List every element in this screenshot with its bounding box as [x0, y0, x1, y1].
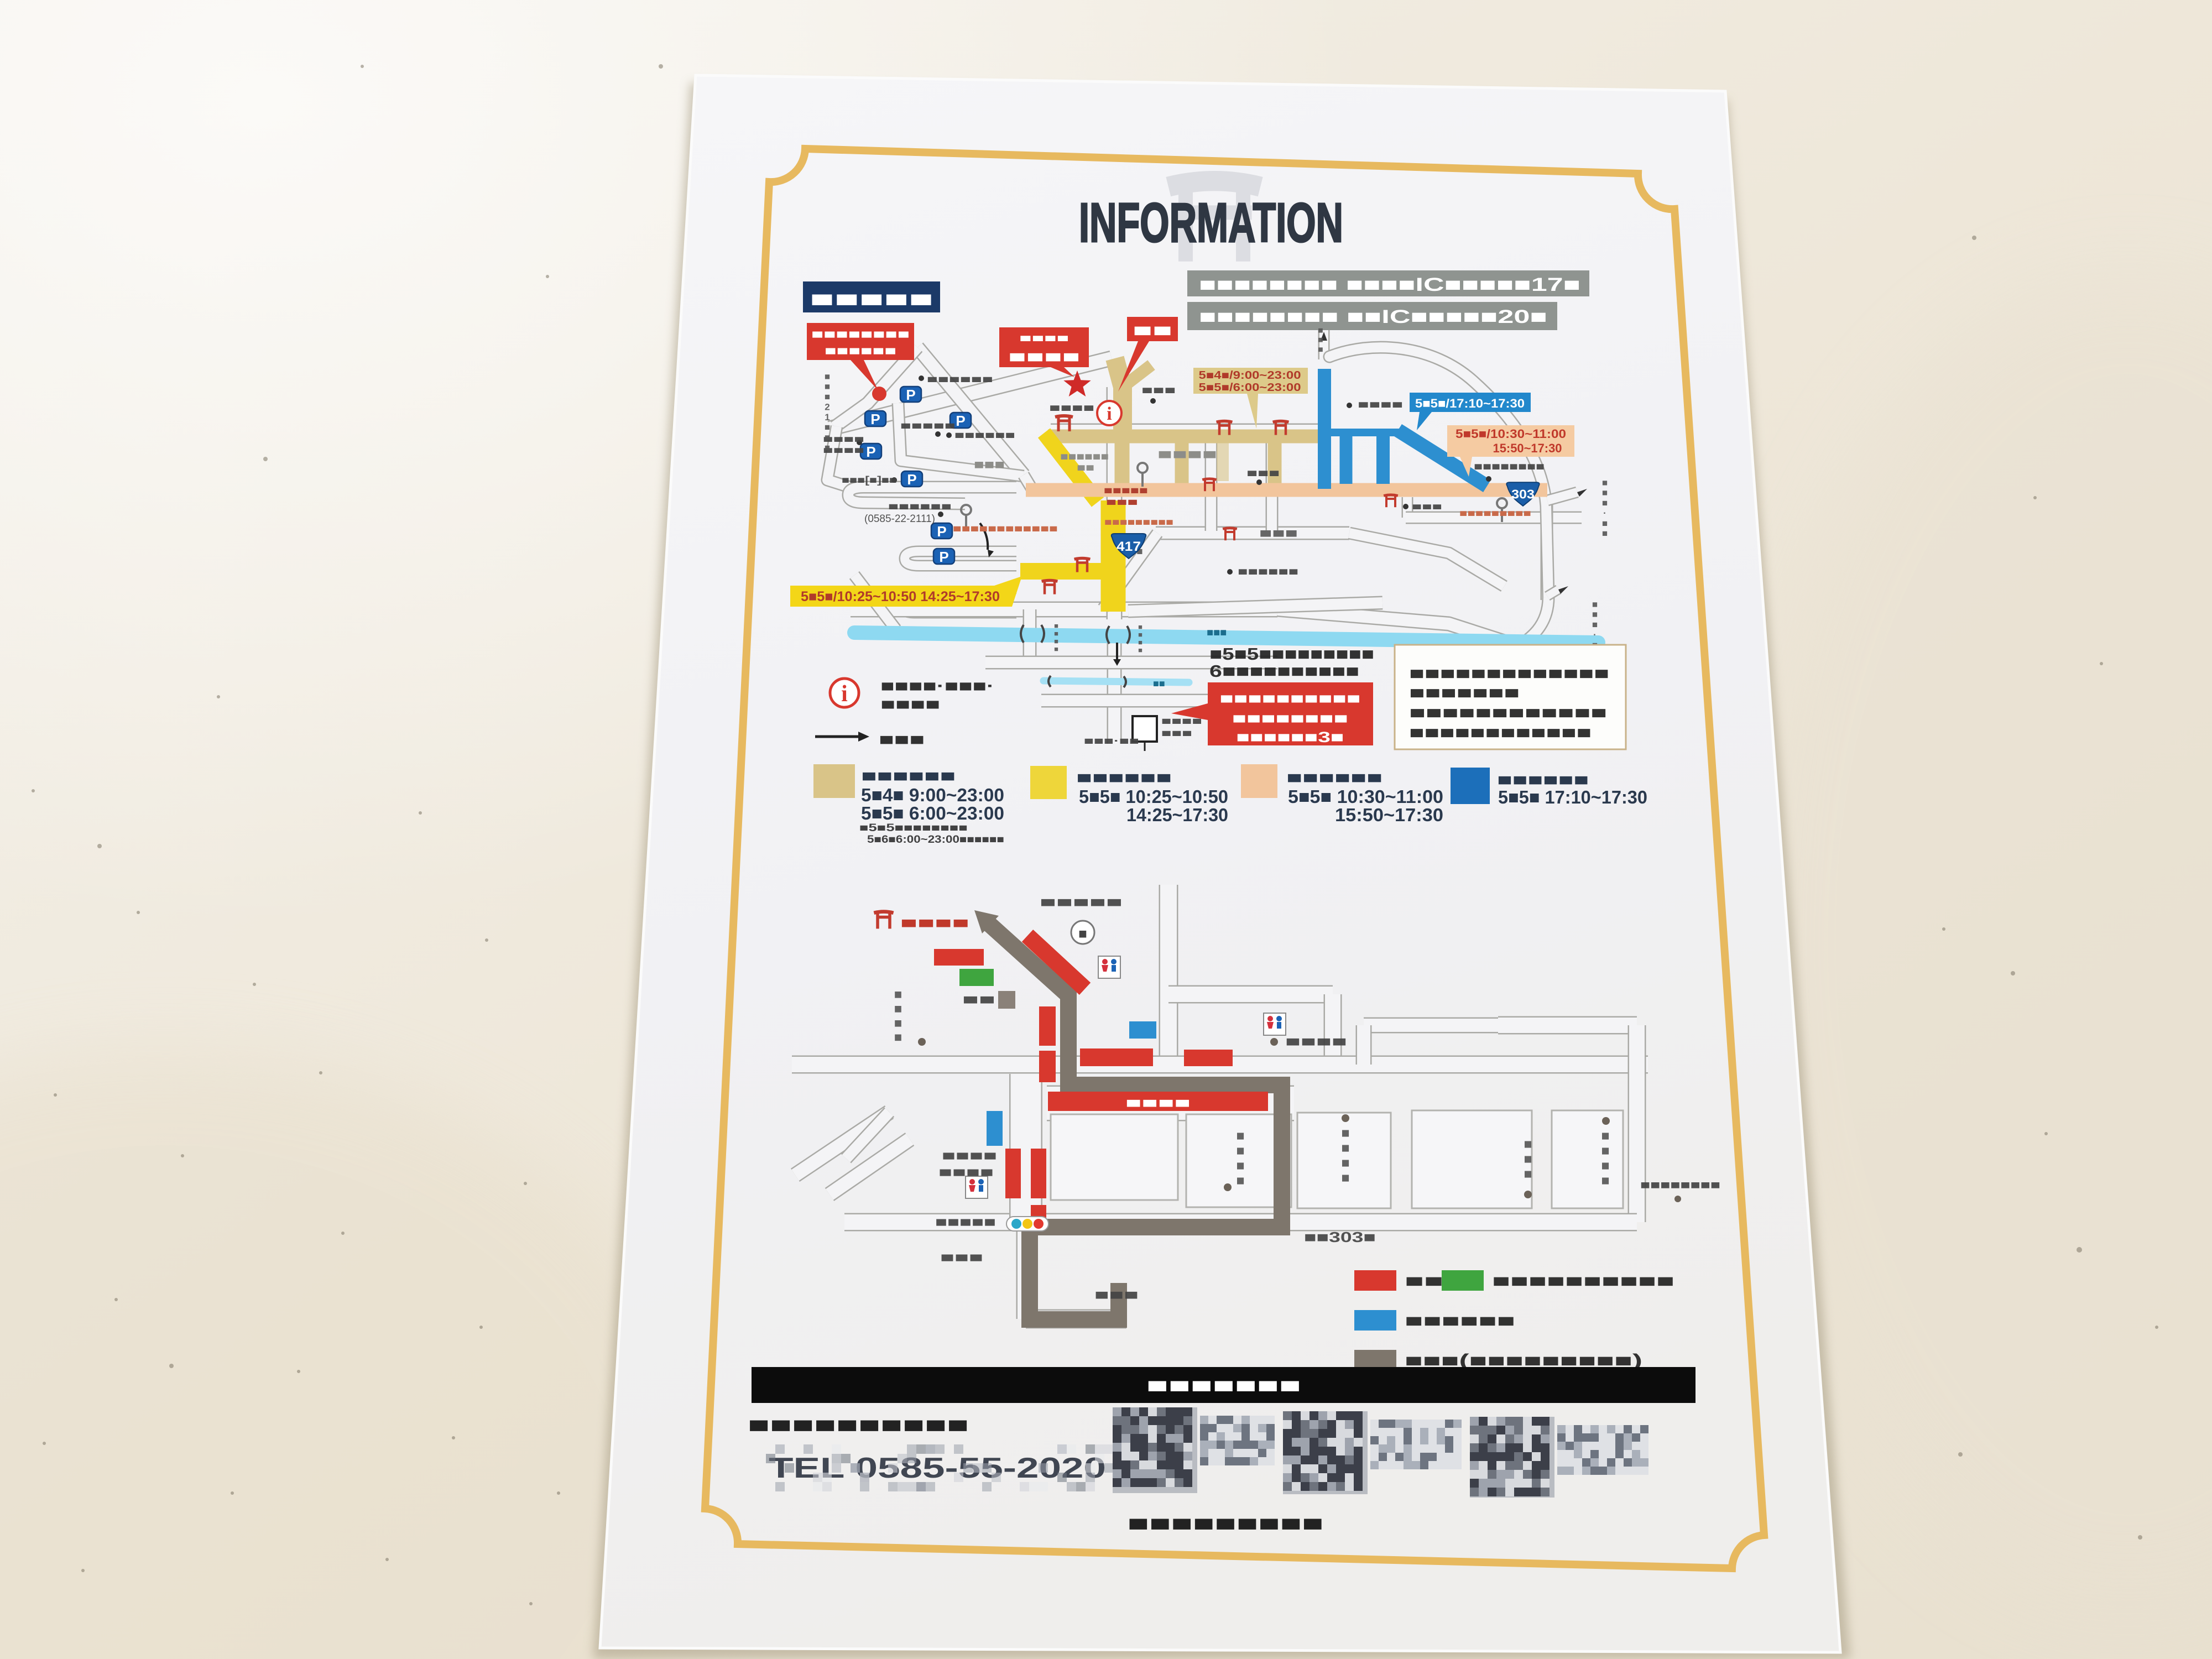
- svg-text:■: ■: [1602, 498, 1608, 508]
- svg-text:■: ■: [1318, 326, 1323, 335]
- svg-text:■■■: ■■■: [1106, 497, 1138, 508]
- svg-text:■■■■■■: ■■■■■■: [1286, 769, 1383, 787]
- svg-text:■■■■■■■: ■■■■■■■: [1409, 683, 1520, 702]
- svg-text:■■■■■■: ■■■■■■: [861, 767, 956, 785]
- svg-text:P: P: [937, 523, 946, 540]
- svg-text:■: ■: [1592, 599, 1598, 609]
- svg-text:■: ■: [1236, 1173, 1244, 1188]
- svg-text:■5■5■■■■■■■■: ■5■5■■■■■■■■: [859, 822, 968, 834]
- svg-text:14:25~17:30: 14:25~17:30: [1126, 805, 1228, 825]
- svg-text:417: 417: [1117, 539, 1141, 554]
- svg-text:■■■■■■: ■■■■■■: [1060, 451, 1109, 463]
- svg-text:■: ■: [825, 382, 830, 392]
- svg-text:1: 1: [825, 412, 830, 422]
- svg-text:■■■■■■■: ■■■■■■■: [1146, 1374, 1301, 1397]
- svg-text:■: ■: [1236, 1128, 1244, 1144]
- svg-text:■: ■: [825, 422, 830, 432]
- svg-text:■■■■■■3■: ■■■■■■3■: [1237, 729, 1344, 745]
- svg-text:■: ■: [1078, 925, 1087, 942]
- svg-text:2: 2: [825, 401, 830, 412]
- svg-text:■: ■: [1138, 623, 1142, 631]
- svg-text:■: ■: [1236, 1143, 1244, 1159]
- svg-text:■: ■: [1524, 1136, 1532, 1152]
- svg-text:■■■: ■■■: [1259, 526, 1298, 541]
- svg-text:5■5■ 10:25~10:50: 5■5■ 10:25~10:50: [1079, 786, 1228, 807]
- svg-text:i: i: [841, 681, 848, 707]
- svg-text:■■■·■■: ■■■·■■: [1084, 735, 1139, 747]
- svg-text:■■■■: ■■■■: [1358, 399, 1403, 411]
- svg-text:6■■■■■■■■■■: 6■■■■■■■■■■: [1209, 661, 1359, 681]
- svg-text:■■■[■]■■: ■■■[■]■■: [842, 474, 897, 486]
- svg-text:■■■■: ■■■■: [1285, 1033, 1347, 1050]
- svg-text:■: ■: [1054, 645, 1058, 653]
- svg-text:■: ■: [1601, 1158, 1609, 1173]
- svg-text:■: ■: [1601, 1143, 1609, 1159]
- svg-text:■■■■: ■■■■: [942, 1148, 997, 1164]
- svg-text:5■4■/9:00~23:00: 5■4■/9:00~23:00: [1199, 369, 1301, 382]
- svg-text:■: ■: [1524, 1151, 1532, 1167]
- svg-text:■■■■■: ■■■■■: [935, 1214, 996, 1230]
- svg-text:■: ■: [1601, 1128, 1609, 1144]
- svg-text:■: ■: [894, 987, 902, 1002]
- svg-text:■■: ■■: [1153, 678, 1165, 689]
- svg-text:INFORMATION: INFORMATION: [1079, 192, 1343, 254]
- svg-text:■: ■: [1602, 488, 1608, 498]
- svg-text:■: ■: [1341, 1125, 1349, 1141]
- svg-text:■■■■■■: ■■■■■■: [1076, 769, 1172, 787]
- svg-text:■■■■■■: ■■■■■■: [954, 430, 1015, 441]
- svg-text:P: P: [939, 549, 948, 565]
- svg-text:■: ■: [1341, 1140, 1349, 1156]
- svg-text:■■■■■■■■: ■■■■■■■■: [1474, 461, 1545, 473]
- svg-text:■■: ■■: [1077, 462, 1094, 474]
- svg-text:■: ■: [1054, 637, 1058, 645]
- svg-text:■: ■: [825, 442, 830, 453]
- svg-text:■■■■: ■■■■: [938, 1165, 994, 1180]
- svg-text:■■■: ■■■: [1207, 627, 1227, 639]
- svg-text:■■■: ■■■: [1094, 1286, 1139, 1303]
- svg-text:■: ■: [1138, 630, 1142, 639]
- svg-text:■: ■: [1236, 1158, 1244, 1173]
- svg-text:■■■■■■■■: ■■■■■■■■: [1232, 710, 1348, 727]
- svg-text:■: ■: [1601, 1173, 1609, 1188]
- svg-text:5■5■/6:00~23:00: 5■5■/6:00~23:00: [1199, 382, 1301, 394]
- svg-text:15:50~17:30: 15:50~17:30: [1335, 805, 1443, 825]
- svg-text:■: ■: [1138, 638, 1142, 646]
- svg-text:■■■■■■■■■: ■■■■■■■■■: [1128, 1511, 1324, 1536]
- svg-text:(0585-22-2111): (0585-22-2111): [864, 513, 935, 525]
- svg-text:■■■■■■■■■■: ■■■■■■■■■■: [1220, 690, 1361, 707]
- svg-text:■: ■: [1592, 609, 1598, 620]
- svg-text:■■■■■: ■■■■■: [900, 420, 956, 432]
- svg-text:■: ■: [1318, 345, 1323, 354]
- svg-text:■■■■■■■■ ■■IC■■■■■20■: ■■■■■■■■ ■■IC■■■■■20■: [1199, 306, 1547, 327]
- svg-text:■■■■: ■■■■: [880, 696, 940, 713]
- svg-text:P: P: [956, 413, 965, 429]
- svg-text:i: i: [1107, 404, 1112, 424]
- svg-text:■■■■■■: ■■■■■■: [1405, 1311, 1515, 1331]
- svg-text:·: ·: [1603, 508, 1606, 518]
- svg-text:P: P: [870, 411, 880, 427]
- svg-text:5■5■/10:30~11:00: 5■5■/10:30~11:00: [1455, 427, 1566, 441]
- svg-text:■: ■: [1602, 528, 1608, 539]
- svg-text:■■■■■■: ■■■■■■: [825, 343, 896, 358]
- svg-text:■■■■: ■■■■: [900, 914, 969, 931]
- svg-text:P: P: [907, 471, 916, 488]
- svg-text:■■■: ■■■: [940, 1250, 983, 1265]
- svg-text:■■■■■■■■■: ■■■■■■■■■: [1459, 508, 1531, 519]
- svg-text:5■6■6:00~23:00■■■■■■: 5■6■6:00~23:00■■■■■■: [867, 834, 1004, 846]
- svg-text:■: ■: [894, 1001, 902, 1016]
- svg-text:5■5■/17:10~17:30: 5■5■/17:10~17:30: [1415, 397, 1525, 410]
- svg-text:■: ■: [1592, 619, 1598, 630]
- svg-text:■■■■: ■■■■: [1019, 332, 1069, 345]
- svg-text:P: P: [906, 387, 915, 403]
- svg-text:■■■■■■■■■■: ■■■■■■■■■■: [1492, 1271, 1674, 1291]
- svg-text:■■■■■: ■■■■■: [1104, 485, 1148, 497]
- svg-text:■■■: ■■■: [1161, 728, 1192, 739]
- svg-text:·: ·: [1593, 629, 1597, 640]
- svg-text:■: ■: [894, 1016, 902, 1031]
- svg-text:■5■5■■■■■■■■■: ■5■5■■■■■■■■■: [1209, 644, 1374, 664]
- svg-text:■: ■: [1054, 622, 1058, 630]
- svg-text:■■■■■: ■■■■■: [810, 287, 933, 311]
- svg-text:5■5■ 17:10~17:30: 5■5■ 17:10~17:30: [1498, 787, 1647, 807]
- svg-text:■■■: ■■■: [1141, 384, 1176, 397]
- svg-text:■: ■: [1341, 1155, 1349, 1171]
- svg-text:■: ■: [1054, 629, 1058, 638]
- svg-text:■■■■■■■■■■■■: ■■■■■■■■■■■■: [953, 523, 1058, 535]
- svg-text:■■■■■■■■: ■■■■■■■■: [1640, 1178, 1720, 1192]
- svg-text:■: ■: [825, 392, 830, 402]
- svg-text:303: 303: [1511, 487, 1535, 502]
- svg-text:■■■■■■■■■: ■■■■■■■■■: [1104, 517, 1173, 528]
- svg-text:■■■■·■■■·: ■■■■·■■■·: [880, 677, 994, 695]
- svg-text:■: ■: [825, 432, 830, 443]
- svg-text:P: P: [866, 444, 875, 460]
- svg-text:■■■■: ■■■■: [1125, 1094, 1191, 1111]
- svg-text:■■■: ■■■: [879, 731, 925, 749]
- svg-text:■■■: ■■■: [1412, 501, 1442, 512]
- svg-text:■■■■: ■■■■: [1049, 402, 1094, 414]
- svg-text:■: ■: [1602, 518, 1608, 529]
- svg-text:5■5■/10:25~10:50 14:25~17:30: 5■5■/10:25~10:50 14:25~17:30: [801, 589, 1000, 604]
- svg-text:15:50~17:30: 15:50~17:30: [1493, 441, 1562, 455]
- svg-text:5■5■ 6:00~23:00: 5■5■ 6:00~23:00: [861, 803, 1004, 823]
- svg-text:■■■■■■■■■■■■: ■■■■■■■■■■■■: [1409, 723, 1592, 742]
- svg-text:5■4■ 9:00~23:00: 5■4■ 9:00~23:00: [861, 785, 1004, 805]
- svg-text:■: ■: [1341, 1170, 1349, 1186]
- svg-text:■■■■■■: ■■■■■■: [1238, 566, 1298, 578]
- svg-text:■■■■■■■■ ■■■■IC■■■■■17■: ■■■■■■■■ ■■■■IC■■■■■17■: [1199, 274, 1580, 295]
- svg-text:■■■: ■■■: [1246, 467, 1280, 479]
- svg-text:■■■■: ■■■■: [1008, 348, 1080, 366]
- svg-text:■: ■: [1318, 336, 1323, 345]
- svg-text:■: ■: [825, 371, 830, 382]
- svg-text:■: ■: [1602, 477, 1608, 488]
- svg-text:■■: ■■: [1133, 320, 1172, 340]
- svg-text:■■■: ■■■: [974, 457, 1005, 472]
- svg-text:■■303■: ■■303■: [1304, 1229, 1376, 1245]
- svg-text:■■■■■■: ■■■■■■: [927, 374, 993, 385]
- svg-text:■: ■: [1524, 1166, 1532, 1182]
- svg-text:■■■■■■: ■■■■■■: [888, 501, 952, 513]
- svg-text:■■■■■■■■■■■■: ■■■■■■■■■■■■: [1409, 703, 1607, 722]
- svg-text:■■■■■■■■■■■■■: ■■■■■■■■■■■■■: [1409, 664, 1609, 683]
- svg-text:■■: ■■: [1405, 1271, 1443, 1291]
- svg-text:■: ■: [1138, 646, 1142, 654]
- svg-text:■■■■■: ■■■■■: [1040, 894, 1123, 910]
- svg-text:5■5■ 10:30~11:00: 5■5■ 10:30~11:00: [1288, 786, 1443, 807]
- svg-text:■■■■■■■■■■: ■■■■■■■■■■: [748, 1413, 969, 1437]
- svg-text:■■■■: ■■■■: [1157, 446, 1217, 462]
- svg-text:■: ■: [894, 1030, 902, 1045]
- svg-text:■■■■■■■■: ■■■■■■■■: [811, 327, 910, 341]
- svg-text:■■: ■■: [962, 991, 995, 1008]
